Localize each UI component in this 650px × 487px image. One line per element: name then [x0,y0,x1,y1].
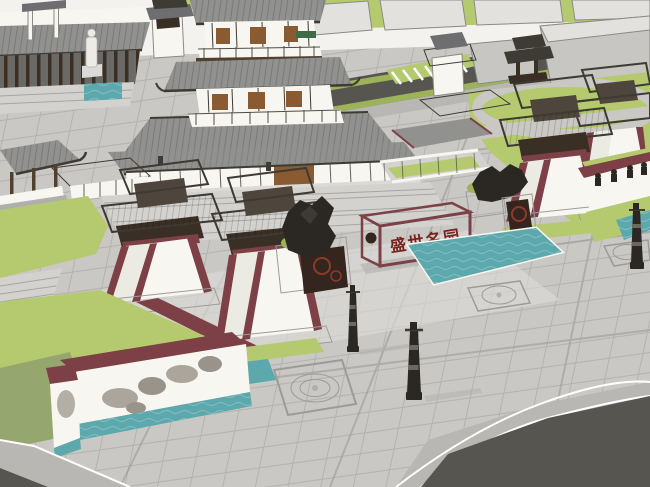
render-frame: 盛世名园 [0,0,650,487]
reflecting-pool-north [84,82,122,101]
pagoda-tier1 [196,20,322,64]
relief-panel-east [506,199,532,230]
render-canvas: 盛世名园 [0,0,650,487]
pagoda-plaque [296,31,316,38]
